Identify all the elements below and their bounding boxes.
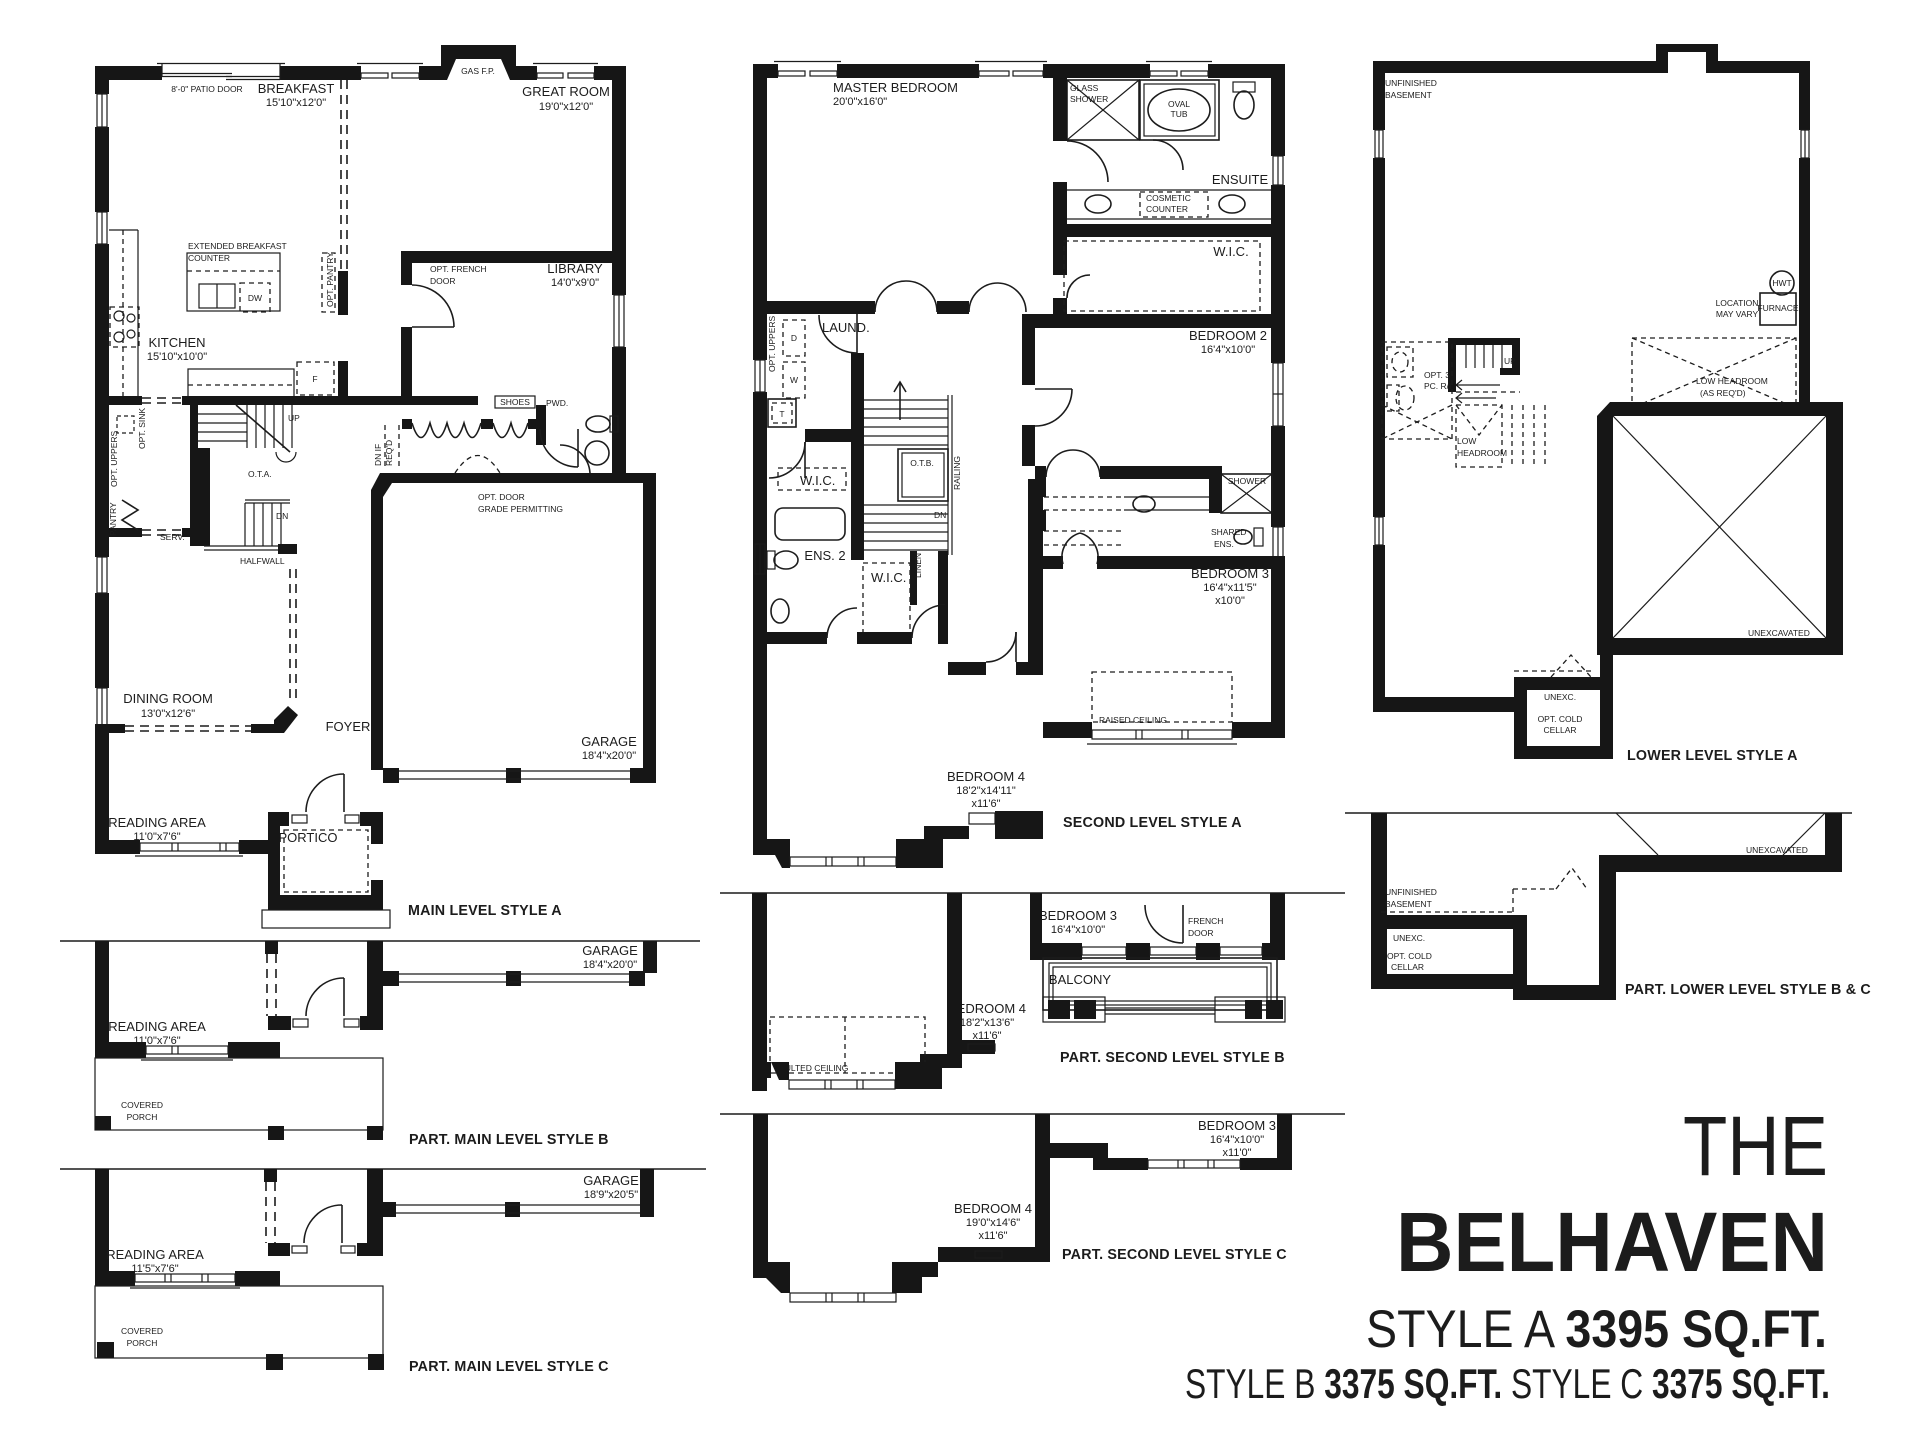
svg-text:COUNTER: COUNTER bbox=[1146, 204, 1188, 214]
svg-text:OPT. FRENCH: OPT. FRENCH bbox=[430, 264, 487, 274]
svg-text:15'10"x12'0": 15'10"x12'0" bbox=[266, 97, 326, 109]
svg-text:MASTER BEDROOM: MASTER BEDROOM bbox=[833, 80, 958, 95]
svg-text:READING AREA: READING AREA bbox=[108, 1019, 206, 1034]
svg-text:UNFINISHED: UNFINISHED bbox=[1385, 78, 1437, 88]
svg-text:GARAGE: GARAGE bbox=[582, 943, 638, 958]
svg-text:CELLAR: CELLAR bbox=[1391, 962, 1424, 972]
svg-text:PANTRY: PANTRY bbox=[108, 502, 118, 536]
svg-text:BALCONY: BALCONY bbox=[1049, 972, 1111, 987]
svg-text:LOCATION: LOCATION bbox=[1716, 298, 1759, 308]
svg-text:16'4"x10'0": 16'4"x10'0" bbox=[1210, 1134, 1264, 1146]
svg-text:HALFWALL: HALFWALL bbox=[240, 556, 285, 566]
svg-text:RAILING: RAILING bbox=[952, 456, 962, 490]
svg-text:BEDROOM 3: BEDROOM 3 bbox=[1191, 566, 1269, 581]
svg-text:CELLAR: CELLAR bbox=[1543, 725, 1576, 735]
svg-text:18'2"x13'6": 18'2"x13'6" bbox=[960, 1017, 1014, 1029]
svg-text:STYLE B 3375 SQ.FT. STYLE C 33: STYLE B 3375 SQ.FT. STYLE C 3375 SQ.FT. bbox=[1185, 1360, 1830, 1407]
svg-text:LOW: LOW bbox=[1457, 436, 1476, 446]
svg-text:STYLE A 3395 SQ.FT.: STYLE A 3395 SQ.FT. bbox=[1366, 1300, 1827, 1359]
svg-text:D: D bbox=[791, 333, 797, 343]
svg-text:PART. LOWER LEVEL STYLE B & C: PART. LOWER LEVEL STYLE B & C bbox=[1625, 982, 1871, 998]
svg-text:16'4"x10'0": 16'4"x10'0" bbox=[1051, 924, 1105, 936]
svg-text:READING AREA: READING AREA bbox=[108, 815, 206, 830]
svg-text:COVERED: COVERED bbox=[121, 1100, 163, 1110]
svg-text:UNEXC.: UNEXC. bbox=[1393, 933, 1425, 943]
svg-text:BASEMENT: BASEMENT bbox=[1385, 899, 1432, 909]
svg-text:GRADE PERMITTING: GRADE PERMITTING bbox=[478, 504, 563, 514]
svg-text:T: T bbox=[779, 409, 784, 419]
svg-text:LINEN: LINEN bbox=[913, 553, 923, 578]
svg-text:ENS. 2: ENS. 2 bbox=[804, 548, 845, 563]
svg-text:UP: UP bbox=[1504, 356, 1516, 366]
svg-text:F: F bbox=[312, 374, 317, 384]
svg-text:GARAGE: GARAGE bbox=[581, 734, 637, 749]
svg-text:UNFINISHED: UNFINISHED bbox=[1385, 887, 1437, 897]
svg-text:18'9"x20'5": 18'9"x20'5" bbox=[584, 1189, 638, 1201]
svg-text:15'10"x10'0": 15'10"x10'0" bbox=[147, 351, 207, 363]
svg-text:O.T.A.: O.T.A. bbox=[248, 469, 272, 479]
svg-text:LAUND.: LAUND. bbox=[822, 320, 870, 335]
svg-text:SHARED: SHARED bbox=[1211, 527, 1246, 537]
svg-text:11'5"x7'6": 11'5"x7'6" bbox=[131, 1263, 178, 1275]
svg-text:UNEXCAVATED: UNEXCAVATED bbox=[1748, 628, 1810, 638]
svg-text:(AS REQ'D): (AS REQ'D) bbox=[1700, 388, 1746, 398]
svg-text:BREAKFAST: BREAKFAST bbox=[258, 81, 335, 96]
svg-text:OPT. COLD: OPT. COLD bbox=[1387, 951, 1432, 961]
svg-text:UNEXCAVATED: UNEXCAVATED bbox=[1746, 845, 1808, 855]
svg-text:O.T.B.: O.T.B. bbox=[910, 458, 934, 468]
svg-text:KITCHEN: KITCHEN bbox=[148, 335, 205, 350]
svg-text:PWD.: PWD. bbox=[546, 398, 568, 408]
svg-text:x11'6": x11'6" bbox=[978, 1230, 1007, 1242]
svg-text:SHOWER: SHOWER bbox=[1070, 94, 1108, 104]
svg-text:TUB: TUB bbox=[1171, 109, 1188, 119]
svg-text:11'0"x7'6": 11'0"x7'6" bbox=[133, 831, 180, 843]
svg-text:REQ'D: REQ'D bbox=[384, 440, 394, 466]
svg-text:SHOES: SHOES bbox=[500, 397, 530, 407]
svg-text:BASEMENT: BASEMENT bbox=[1385, 90, 1432, 100]
svg-text:19'0"x14'6": 19'0"x14'6" bbox=[966, 1217, 1020, 1229]
svg-text:MAIN LEVEL STYLE A: MAIN LEVEL STYLE A bbox=[408, 903, 562, 919]
svg-text:COUNTER: COUNTER bbox=[188, 253, 230, 263]
svg-text:19'0"x12'0": 19'0"x12'0" bbox=[539, 101, 593, 113]
svg-text:COSMETIC: COSMETIC bbox=[1146, 193, 1191, 203]
svg-text:DN IF: DN IF bbox=[373, 444, 383, 466]
svg-text:20'0"x16'0": 20'0"x16'0" bbox=[833, 96, 887, 108]
svg-text:DINING ROOM: DINING ROOM bbox=[123, 691, 213, 706]
svg-text:DOOR: DOOR bbox=[1188, 928, 1214, 938]
svg-text:PART. MAIN LEVEL STYLE B: PART. MAIN LEVEL STYLE B bbox=[409, 1132, 609, 1148]
svg-text:PORTICO: PORTICO bbox=[279, 830, 338, 845]
svg-text:READING AREA: READING AREA bbox=[106, 1247, 204, 1262]
svg-text:BEDROOM 3: BEDROOM 3 bbox=[1039, 908, 1117, 923]
svg-text:OPT. COLD: OPT. COLD bbox=[1538, 714, 1583, 724]
svg-text:BEDROOM 3: BEDROOM 3 bbox=[1198, 1118, 1276, 1133]
svg-text:OPT. UPPERS: OPT. UPPERS bbox=[767, 315, 777, 372]
svg-text:FRENCH: FRENCH bbox=[1188, 916, 1223, 926]
svg-text:x10'0": x10'0" bbox=[1215, 595, 1245, 607]
svg-text:OVAL: OVAL bbox=[1168, 99, 1190, 109]
svg-text:GLASS: GLASS bbox=[1070, 83, 1099, 93]
svg-text:18'4"x20'0": 18'4"x20'0" bbox=[582, 750, 636, 762]
svg-text:EXTENDED BREAKFAST: EXTENDED BREAKFAST bbox=[188, 241, 287, 251]
svg-text:GAS F.P.: GAS F.P. bbox=[461, 66, 495, 76]
svg-text:MAY VARY: MAY VARY bbox=[1716, 309, 1759, 319]
svg-text:OPT. PANTRY: OPT. PANTRY bbox=[325, 252, 335, 307]
svg-text:PART. SECOND LEVEL STYLE B: PART. SECOND LEVEL STYLE B bbox=[1060, 1050, 1285, 1066]
svg-text:OPT. 3: OPT. 3 bbox=[1424, 370, 1450, 380]
svg-text:14'0"x9'0": 14'0"x9'0" bbox=[551, 277, 599, 289]
svg-text:FURNACE: FURNACE bbox=[1757, 303, 1798, 313]
svg-text:DW: DW bbox=[248, 293, 262, 303]
svg-text:W: W bbox=[790, 375, 798, 385]
svg-text:x11'6": x11'6" bbox=[971, 798, 1000, 810]
svg-text:8'-0" PATIO DOOR: 8'-0" PATIO DOOR bbox=[171, 84, 242, 94]
svg-text:OPT. SINK: OPT. SINK bbox=[137, 408, 147, 449]
svg-text:FOYER: FOYER bbox=[326, 719, 371, 734]
svg-text:RAISED CEILING: RAISED CEILING bbox=[1099, 715, 1167, 725]
svg-text:13'0"x12'6": 13'0"x12'6" bbox=[141, 708, 195, 720]
svg-text:SECOND LEVEL STYLE A: SECOND LEVEL STYLE A bbox=[1063, 815, 1242, 831]
svg-text:DN: DN bbox=[934, 510, 946, 520]
svg-text:HEADROOM: HEADROOM bbox=[1457, 448, 1507, 458]
svg-text:GREAT ROOM: GREAT ROOM bbox=[522, 84, 610, 99]
svg-text:ENSUITE: ENSUITE bbox=[1212, 172, 1269, 187]
svg-text:SERV.: SERV. bbox=[160, 532, 185, 542]
svg-text:SHOWER: SHOWER bbox=[1228, 476, 1266, 486]
svg-text:18'2"x14'11": 18'2"x14'11" bbox=[956, 785, 1016, 797]
svg-text:OPT. DOOR: OPT. DOOR bbox=[478, 492, 525, 502]
svg-text:PORCH: PORCH bbox=[127, 1112, 158, 1122]
svg-text:UNEXC.: UNEXC. bbox=[1544, 692, 1576, 702]
svg-text:GARAGE: GARAGE bbox=[583, 1173, 639, 1188]
svg-text:UP: UP bbox=[288, 413, 300, 423]
svg-text:16'4"x11'5": 16'4"x11'5" bbox=[1203, 582, 1256, 594]
svg-text:DN: DN bbox=[276, 511, 288, 521]
svg-text:THE: THE bbox=[1683, 1099, 1828, 1193]
svg-text:LOW HEADROOM: LOW HEADROOM bbox=[1696, 376, 1768, 386]
svg-text:PORCH: PORCH bbox=[127, 1338, 158, 1348]
svg-text:LIBRARY: LIBRARY bbox=[547, 261, 603, 276]
svg-text:ENS.: ENS. bbox=[1214, 539, 1234, 549]
svg-text:18'4"x20'0": 18'4"x20'0" bbox=[583, 959, 637, 971]
svg-text:LOWER LEVEL STYLE A: LOWER LEVEL STYLE A bbox=[1627, 748, 1798, 764]
svg-text:HWT: HWT bbox=[1772, 278, 1791, 288]
svg-text:W.I.C.: W.I.C. bbox=[871, 570, 906, 585]
svg-text:PART. SECOND LEVEL STYLE C: PART. SECOND LEVEL STYLE C bbox=[1062, 1247, 1287, 1263]
svg-text:PC. R/I: PC. R/I bbox=[1424, 381, 1451, 391]
svg-text:COVERED: COVERED bbox=[121, 1326, 163, 1336]
svg-text:PART. MAIN LEVEL STYLE C: PART. MAIN LEVEL STYLE C bbox=[409, 1359, 609, 1375]
svg-text:BEDROOM 4: BEDROOM 4 bbox=[947, 769, 1025, 784]
svg-text:16'4"x10'0": 16'4"x10'0" bbox=[1201, 344, 1255, 356]
svg-text:W.I.C.: W.I.C. bbox=[800, 473, 835, 488]
svg-text:BELHAVEN: BELHAVEN bbox=[1396, 1195, 1828, 1289]
svg-text:BEDROOM 4: BEDROOM 4 bbox=[954, 1201, 1032, 1216]
svg-text:W.I.C.: W.I.C. bbox=[1213, 244, 1248, 259]
svg-text:x11'0": x11'0" bbox=[1222, 1147, 1251, 1159]
svg-text:DOOR: DOOR bbox=[430, 276, 456, 286]
svg-text:BEDROOM 2: BEDROOM 2 bbox=[1189, 328, 1267, 343]
svg-text:OPT. UPPERS: OPT. UPPERS bbox=[109, 430, 119, 487]
